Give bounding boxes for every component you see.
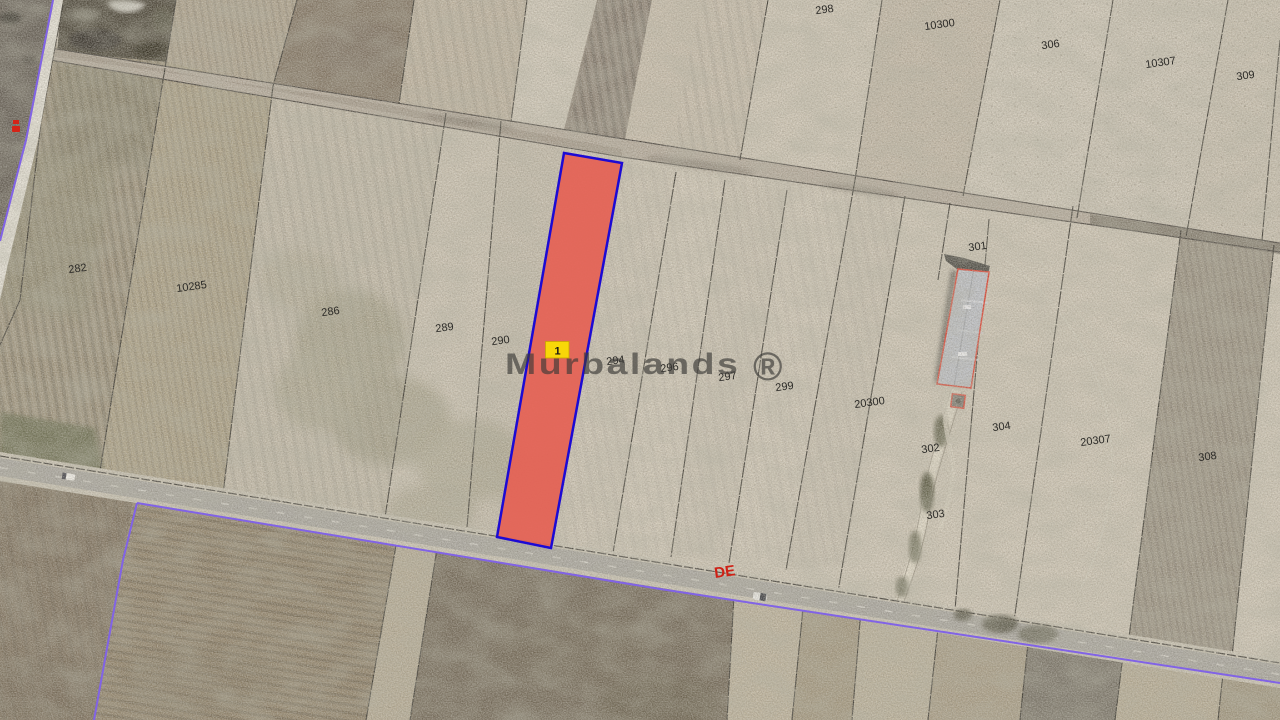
svg-text:301: 301 xyxy=(968,240,988,254)
svg-text:298: 298 xyxy=(815,3,835,17)
svg-text:286: 286 xyxy=(321,305,341,319)
svg-text:304: 304 xyxy=(992,420,1012,434)
svg-text:303: 303 xyxy=(926,508,946,522)
svg-text:DE: DE xyxy=(713,562,736,582)
svg-text:309: 309 xyxy=(1236,69,1256,83)
svg-text:Murbalands: Murbalands xyxy=(505,347,740,381)
svg-text:282: 282 xyxy=(68,262,88,276)
svg-text:308: 308 xyxy=(1198,450,1218,464)
svg-text:®: ® xyxy=(753,345,782,389)
svg-text:306: 306 xyxy=(1041,38,1061,52)
svg-text:290: 290 xyxy=(491,334,511,348)
svg-text:289: 289 xyxy=(435,321,455,335)
svg-text:1: 1 xyxy=(554,346,560,358)
svg-text:302: 302 xyxy=(921,442,941,456)
